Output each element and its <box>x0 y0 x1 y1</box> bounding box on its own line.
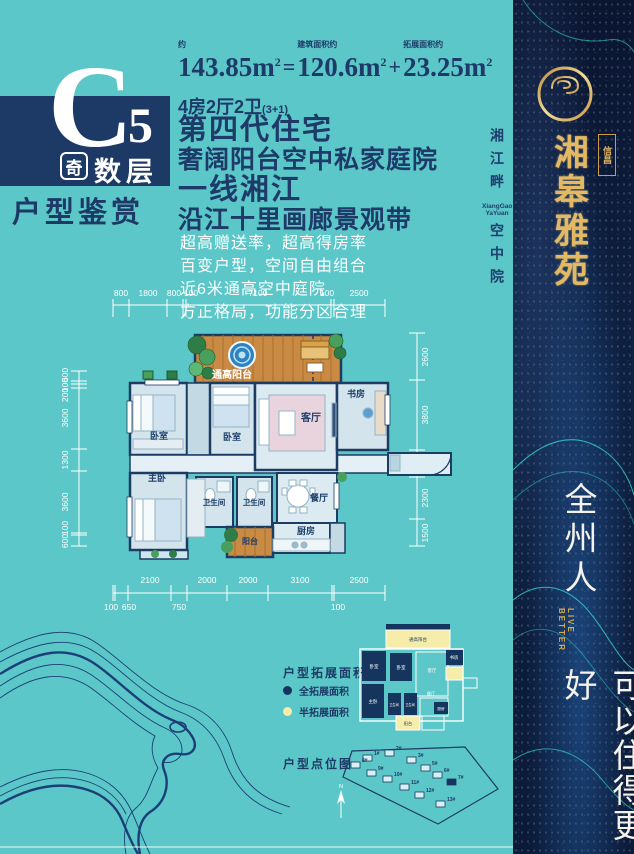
svg-text:卫生间: 卫生间 <box>389 702 399 707</box>
svg-text:12#: 12# <box>426 788 435 794</box>
expand-area-value: 23.25m2 <box>403 49 492 80</box>
master-wardrobe <box>187 479 205 537</box>
lower-deck <box>140 550 188 559</box>
label-bedroom-left: 卧室 <box>150 430 168 441</box>
svg-text:厨房: 厨房 <box>437 706 445 711</box>
legend-half: 半拓展面积 <box>283 704 349 719</box>
svg-text:6#: 6# <box>444 768 450 774</box>
poster-root: C 5 奇 数层 户型鉴赏 约 143.85m2 = 建筑面积约 120.6m2… <box>0 0 634 854</box>
chair-icon <box>363 408 373 418</box>
svg-text:N: N <box>339 784 343 790</box>
svg-text:8#: 8# <box>362 758 368 764</box>
svg-text:1300: 1300 <box>60 450 70 469</box>
svg-text:阳台: 阳台 <box>404 720 412 727</box>
svg-text:7#: 7# <box>458 775 464 781</box>
headline-3: 一线湘江 <box>178 175 438 206</box>
headlines: 第四代住宅 奢阔阳台空中私家庭院 一线湘江 沿江十里画廊景观带 <box>178 115 438 235</box>
dim-labels-right: 2600 3800 1500 2300 1500 <box>420 347 430 542</box>
dining-table-icon <box>287 485 309 507</box>
room-closet <box>187 383 210 455</box>
contour-art <box>0 612 290 854</box>
legend-full: 全拓展面积 <box>283 683 349 698</box>
area-stats: 约 143.85m2 = 建筑面积约 120.6m2 + 拓展面积约 23.25… <box>178 40 492 80</box>
legend-full-label: 全拓展面积 <box>299 683 349 698</box>
company-name: 信昌 <box>598 134 616 176</box>
svg-text:750: 750 <box>172 602 186 612</box>
unit-letter: C <box>48 48 133 166</box>
feature-2: 百变户型，空间自由组合 <box>180 255 367 278</box>
svg-text:100: 100 <box>104 602 118 612</box>
brand-seal-icon <box>535 64 595 124</box>
svg-text:7100: 7100 <box>249 288 268 298</box>
floorplan: 800 1800 800 100 7100 100 2500 600 100 2… <box>55 283 475 613</box>
svg-text:书房: 书房 <box>450 654 459 661</box>
svg-text:9#: 9# <box>378 766 384 772</box>
svg-text:10#: 10# <box>394 772 403 778</box>
svg-text:5#: 5# <box>432 761 438 767</box>
svg-text:2#: 2# <box>396 746 402 752</box>
legend-full-dot <box>283 686 292 695</box>
svg-text:1#: 1# <box>374 751 380 757</box>
svg-text:2000: 2000 <box>239 575 258 585</box>
brand-sidebar: 湘皋雅苑 信昌 全州人 BETTERLIVE 可以住得更好 <box>513 0 634 854</box>
tv-icon <box>332 403 336 437</box>
svg-text:2000: 2000 <box>198 575 217 585</box>
svg-text:3#: 3# <box>418 753 424 759</box>
master-headboard <box>135 499 143 541</box>
plus-sign: + <box>387 54 404 80</box>
svg-text:600: 600 <box>60 534 70 548</box>
odd-floor-tag: 奇 <box>60 152 88 180</box>
svg-text:100: 100 <box>320 288 334 298</box>
expand-area: 拓展面积约 23.25m2 <box>403 40 492 80</box>
svg-text:卧室: 卧室 <box>370 663 379 670</box>
label-balcony: 阳台 <box>242 536 258 546</box>
tagline-strip: 湘江畔 XiangGaoYaYuan 空中院 <box>482 128 512 292</box>
svg-text:200: 200 <box>60 388 70 402</box>
slogan-en: BETTERLIVE <box>557 608 575 652</box>
svg-text:100: 100 <box>184 288 198 298</box>
headline-1: 第四代住宅 <box>178 115 438 146</box>
svg-text:客厅: 客厅 <box>428 667 437 674</box>
svg-text:100: 100 <box>60 521 70 535</box>
tagline-line2: 空中院 <box>487 223 507 292</box>
svg-text:800: 800 <box>167 288 181 298</box>
svg-text:2500: 2500 <box>350 288 369 298</box>
label-master: 主卧 <box>148 472 166 483</box>
feature-1: 超高赠送率，超高得房率 <box>180 232 367 255</box>
svg-text:800: 800 <box>114 288 128 298</box>
svg-text:1500: 1500 <box>420 523 430 542</box>
svg-text:2500: 2500 <box>350 575 369 585</box>
svg-text:2600: 2600 <box>420 347 430 366</box>
total-area-value: 143.85m2 <box>178 49 281 80</box>
brand-name-block: 湘皋雅苑 信昌 <box>543 134 616 290</box>
legend-half-label: 半拓展面积 <box>299 704 349 719</box>
tagline-line1: 湘江畔 <box>487 128 507 197</box>
slogan-part2: 可以住得更好 <box>553 668 634 854</box>
total-area-label: 约 <box>178 40 281 49</box>
compass-icon: N <box>337 784 345 818</box>
equals-sign: = <box>281 54 298 80</box>
label-bedroom-mid: 卧室 <box>223 431 241 442</box>
balcony-plant-icon <box>224 528 238 542</box>
svg-text:卧室: 卧室 <box>397 664 406 671</box>
label-study: 书房 <box>347 388 365 399</box>
svg-text:通高阳台: 通高阳台 <box>409 636 427 643</box>
svg-text:2300: 2300 <box>420 488 430 507</box>
label-bath-right: 卫生间 <box>243 497 266 507</box>
dim-labels-top: 800 1800 800 100 7100 100 2500 <box>114 288 369 298</box>
expansion-title: 户型拓展面积 <box>283 664 367 681</box>
svg-text:卫生间: 卫生间 <box>405 702 415 707</box>
unit-subtitle: 户型鉴赏 <box>12 189 144 231</box>
label-bath-left: 卫生间 <box>203 497 226 507</box>
unit-number: 5 <box>128 100 153 150</box>
svg-text:2100: 2100 <box>141 575 160 585</box>
built-area-value: 120.6m2 <box>297 49 386 80</box>
slogan-part1: 全州人 <box>553 482 601 599</box>
bed-mid-headboard <box>213 387 249 395</box>
label-living: 客厅 <box>300 411 321 424</box>
svg-text:100: 100 <box>331 602 345 612</box>
built-area-label: 建筑面积约 <box>297 40 386 49</box>
sitemap: N 1# 2# 3# 5# 6# 7# 8# 9# 10# 11# 12# 13… <box>325 742 510 837</box>
dim-labels-left: 600 100 200 3600 1300 3600 100 600 <box>60 368 70 548</box>
sofa-icon <box>259 399 269 445</box>
expansion-schematic: 通高阳台 卧室 卧室 客厅 书房 主卧 卫生间 卫生间 餐厅 厨房 阳台 <box>358 620 483 740</box>
built-area: 建筑面积约 120.6m2 <box>297 40 386 80</box>
legend-half-dot <box>283 707 292 716</box>
svg-text:3100: 3100 <box>291 575 310 585</box>
label-dining: 餐厅 <box>309 492 328 503</box>
utility-column <box>330 523 345 553</box>
svg-text:3800: 3800 <box>420 405 430 424</box>
bottom-border <box>0 846 513 848</box>
svg-text:3600: 3600 <box>60 408 70 427</box>
shoe-cabinet <box>390 455 400 471</box>
svg-text:主卧: 主卧 <box>369 698 378 705</box>
headline-2: 奢阔阳台空中私家庭院 <box>178 146 438 175</box>
svg-text:3600: 3600 <box>60 492 70 511</box>
tagline-en: XiangGaoYaYuan <box>482 203 512 217</box>
dim-ticks-top <box>113 299 385 317</box>
terrace-label: 通高阳台 <box>212 368 252 381</box>
highlighted-building <box>447 779 456 785</box>
svg-text:1800: 1800 <box>139 288 158 298</box>
svg-text:650: 650 <box>122 602 136 612</box>
headline-4: 沿江十里画廊景观带 <box>178 206 438 235</box>
floor-tag-suffix: 数层 <box>94 150 158 189</box>
expand-area-label: 拓展面积约 <box>403 40 492 49</box>
label-kitchen: 厨房 <box>297 525 315 536</box>
svg-text:13#: 13# <box>447 797 456 803</box>
total-area: 约 143.85m2 <box>178 40 281 80</box>
bed-headboard <box>133 395 141 431</box>
terrace-deck: 通高阳台 <box>188 334 346 383</box>
coffee-table-icon <box>279 411 295 435</box>
svg-text:餐厅: 餐厅 <box>427 690 435 697</box>
brand-name: 湘皋雅苑 <box>543 134 594 290</box>
svg-text:11#: 11# <box>411 780 419 786</box>
desk-icon <box>375 391 386 435</box>
